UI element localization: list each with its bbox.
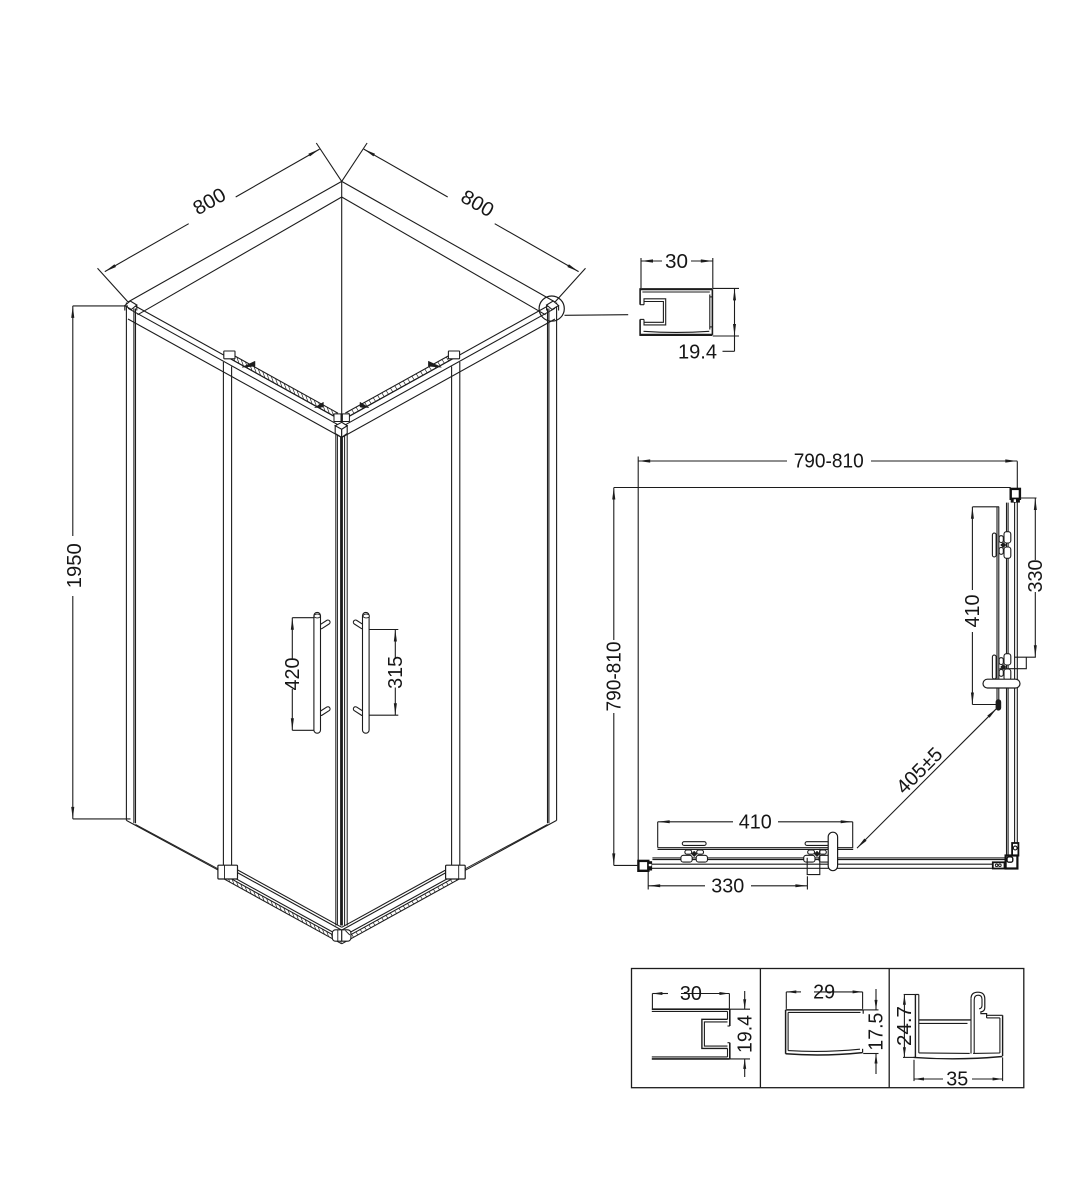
svg-text:30: 30 [680,983,702,1005]
svg-text:790-810: 790-810 [604,642,626,712]
svg-text:420: 420 [282,658,304,691]
svg-text:410: 410 [962,595,984,628]
svg-text:330: 330 [711,875,744,897]
svg-text:19.4: 19.4 [678,341,717,363]
svg-text:17.5: 17.5 [866,1013,888,1051]
svg-text:330: 330 [1025,560,1047,593]
svg-text:315: 315 [385,656,407,689]
svg-text:19.4: 19.4 [734,1015,756,1053]
svg-text:410: 410 [739,811,772,833]
svg-text:29: 29 [813,981,835,1003]
svg-text:35: 35 [946,1069,968,1091]
svg-text:24.7: 24.7 [894,1006,916,1046]
svg-text:790-810: 790-810 [794,451,864,473]
svg-text:1950: 1950 [64,543,86,588]
svg-text:30: 30 [665,251,688,273]
